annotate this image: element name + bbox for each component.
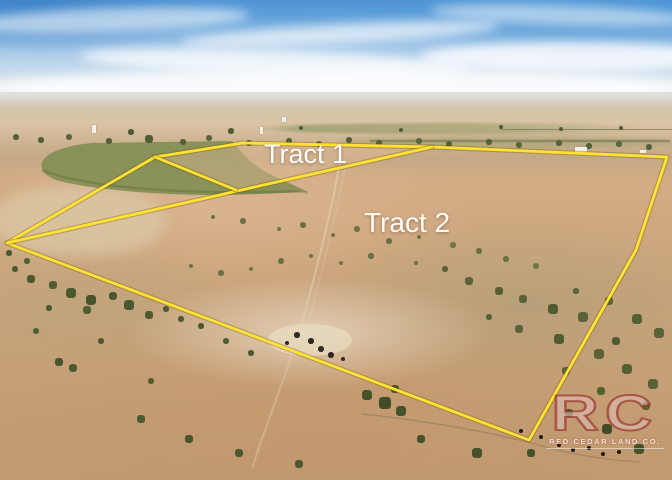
- tract1-bottom-edge: [155, 157, 236, 190]
- tract2-label: Tract 2: [364, 207, 450, 239]
- logo-initials: RC: [552, 390, 659, 436]
- tract1-label: Tract 1: [264, 139, 347, 170]
- company-watermark: RC RED CEDAR LAND CO.: [546, 390, 664, 449]
- aerial-land-photo: Tract 1 Tract 2 RC RED CEDAR LAND CO.: [0, 0, 672, 480]
